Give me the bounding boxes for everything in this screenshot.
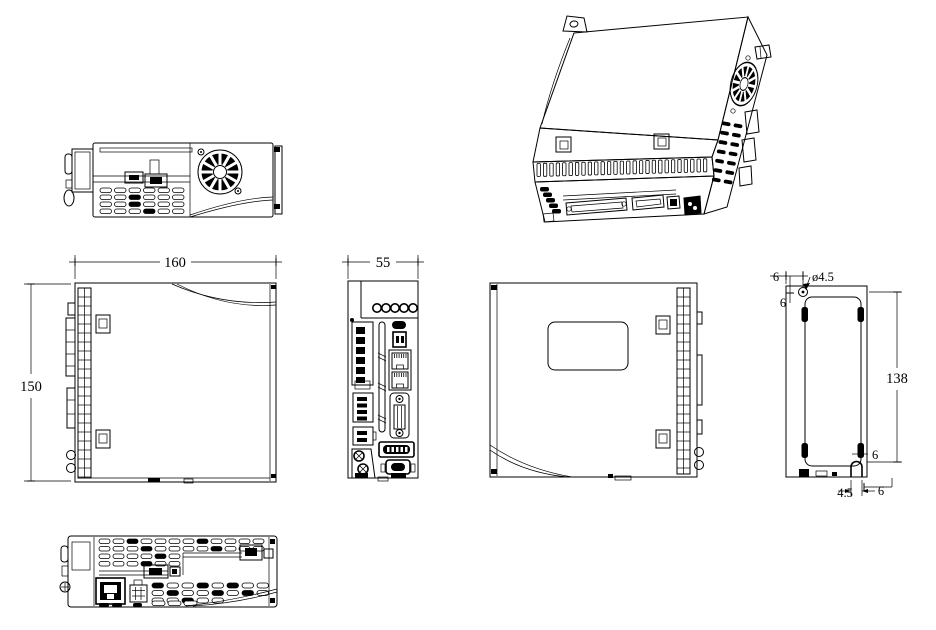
servo-drive-dimension-drawing: 160 150	[0, 0, 936, 630]
dim-label-rear-mounting-height: 138	[886, 371, 908, 387]
iso-mounting-ear	[563, 16, 587, 32]
iso-dsub-connector-1	[566, 198, 627, 215]
bottom-oval-row	[152, 601, 197, 606]
front-ethernet-ports	[389, 350, 411, 390]
iso-dsub-connector-2	[632, 195, 664, 210]
dim-rear-slot-width: 4.5	[837, 480, 875, 500]
dim-label-rear-hole-diameter: ø4.5	[812, 270, 834, 284]
side-right-seam-2	[490, 445, 572, 477]
rear-view: 6 ø4.5 6 138 6	[770, 270, 908, 500]
front-io-connector-2slot	[353, 427, 376, 445]
side-right-clip-2	[656, 430, 670, 448]
cooling-fan-top	[198, 149, 242, 194]
side-view-left: 160 150	[20, 255, 282, 483]
isometric-view	[533, 16, 771, 222]
top-din-rail-strip	[274, 146, 282, 214]
dim-label-side-height: 150	[20, 379, 42, 395]
iso-top-face	[540, 17, 748, 140]
dim-rear-hole-offset-y: 6	[780, 276, 794, 310]
side-view-right	[490, 283, 704, 480]
side-left-body	[75, 283, 276, 482]
dim-label-side-width: 160	[164, 255, 186, 271]
rear-body	[786, 286, 867, 477]
dim-label-rear-hole-offset-y: 6	[780, 296, 786, 310]
top-vent-grid	[100, 188, 184, 214]
side-right-din-strip	[491, 284, 497, 476]
rear-mount-plate	[805, 297, 861, 466]
iso-bottom-ovals	[540, 187, 561, 214]
iso-edge-connectors	[739, 110, 759, 186]
top-slot-bar	[100, 148, 192, 152]
side-right-nameplate	[548, 322, 628, 370]
bottom-ethernet-port	[96, 578, 125, 607]
side-left-front-connectors	[66, 303, 76, 473]
dim-rear-edge-offset: 6	[864, 478, 892, 498]
front-card-slot	[379, 442, 414, 457]
dim-label-front-width: 55	[376, 255, 391, 271]
side-left-din-strip	[270, 284, 276, 481]
iso-band	[533, 128, 718, 162]
iso-fan-screw-2	[731, 109, 735, 113]
bottom-grid-connector	[130, 580, 147, 607]
side-left-seam	[172, 284, 276, 303]
bottom-view	[60, 536, 277, 607]
iso-clip-1	[556, 137, 571, 152]
side-right-front-connectors	[695, 312, 704, 470]
dim-side-height: 150	[20, 284, 71, 481]
side-left-vent-ladder	[78, 288, 91, 478]
front-scsi-connector	[390, 393, 409, 438]
dim-label-rear-slot-width: 4.5	[837, 486, 853, 500]
dim-label-rear-hole-offset-x: 6	[773, 270, 779, 284]
side-left-clip-1	[96, 315, 110, 333]
front-power-connector	[352, 322, 373, 389]
front-center-slot	[378, 322, 386, 432]
side-right-seam	[490, 450, 568, 477]
dim-label-rear-slot-offset: 6	[872, 448, 878, 462]
dim-side-width: 160	[69, 255, 282, 279]
dim-rear-slot-offset: 6	[852, 448, 878, 462]
bottom-vent-slots-right	[152, 583, 269, 596]
dim-rear-hole-offset-x: 6	[770, 270, 808, 287]
iso-small-connector	[667, 196, 680, 209]
side-left-clip-2	[96, 430, 110, 448]
dim-rear-hole-diameter: ø4.5	[803, 270, 834, 290]
front-indicator-oval	[392, 321, 406, 329]
iso-fan-screw-1	[746, 56, 750, 60]
rear-latch-tabs	[802, 307, 865, 458]
bottom-vent-grid-upper	[99, 539, 264, 551]
dim-front-width: 55	[342, 255, 424, 279]
front-display-bezel	[361, 281, 418, 318]
bottom-din-strip	[269, 537, 275, 606]
front-view: 55	[342, 255, 424, 481]
top-view-front-bezel	[64, 149, 93, 206]
side-right-clip-1	[656, 316, 670, 334]
iso-side-vent-hatch	[712, 122, 742, 185]
iso-power-inlet	[684, 196, 701, 215]
bottom-vent-grid-lower	[99, 554, 180, 566]
front-bottom-connector	[381, 460, 415, 474]
front-led-dot	[350, 318, 354, 322]
top-view	[64, 143, 282, 217]
dimension-drawing-canvas: 160 150	[0, 0, 936, 630]
bottom-front-bezel	[60, 537, 94, 606]
front-usb-port	[393, 332, 406, 347]
top-panel-seam-2	[190, 200, 273, 217]
rear-bottom-details	[799, 469, 837, 477]
front-io-connector-4slot	[353, 393, 373, 422]
dim-label-rear-edge-offset: 6	[878, 484, 884, 498]
side-right-vent-ladder	[677, 288, 690, 474]
rear-keyhole-slot	[851, 462, 862, 477]
dim-rear-mounting-height: 138	[867, 292, 908, 462]
top-view-mid-components	[93, 160, 190, 187]
front-feet	[355, 473, 406, 481]
